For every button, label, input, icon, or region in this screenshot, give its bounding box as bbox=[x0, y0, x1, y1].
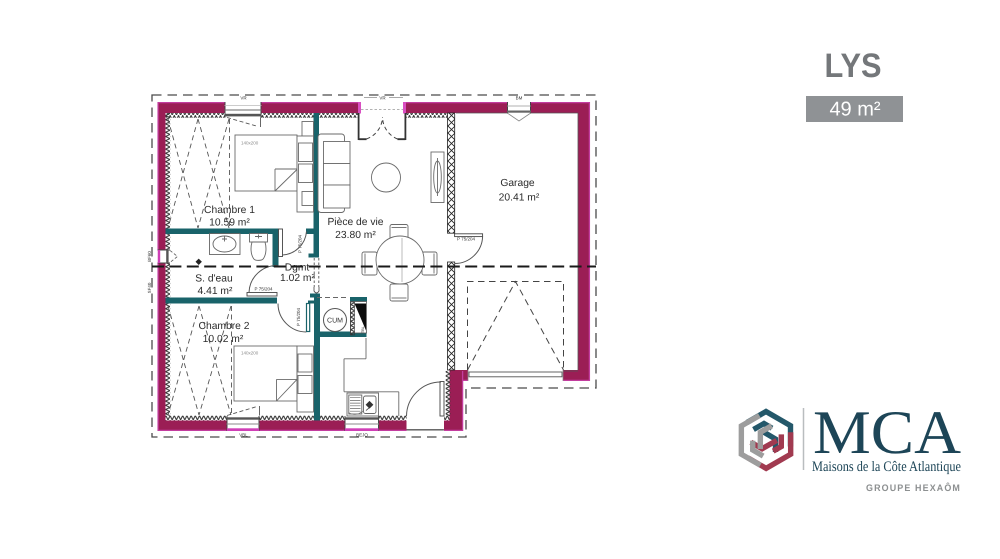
svg-text:MCA: MCA bbox=[813, 399, 961, 467]
svg-text:Pièce de vie: Pièce de vie bbox=[327, 217, 383, 228]
svg-text:TBL: TBL bbox=[361, 326, 365, 333]
svg-text:BM: BM bbox=[516, 96, 523, 101]
svg-text:Garage: Garage bbox=[500, 178, 535, 189]
svg-text:P 75/204: P 75/204 bbox=[255, 287, 273, 292]
svg-text:P 75/204: P 75/204 bbox=[457, 237, 475, 242]
svg-text:Maisons de la Côte Atlantique: Maisons de la Côte Atlantique bbox=[812, 459, 961, 475]
svg-text:GROUPE HEXAÔM: GROUPE HEXAÔM bbox=[866, 482, 961, 494]
svg-text:10.59 m²: 10.59 m² bbox=[209, 218, 250, 229]
svg-text:49 m²: 49 m² bbox=[829, 99, 880, 121]
svg-text:VBL: VBL bbox=[239, 433, 248, 438]
svg-text:20.41 m²: 20.41 m² bbox=[499, 193, 540, 204]
svg-text:Chambre 2: Chambre 2 bbox=[199, 321, 250, 332]
svg-text:Chambre 1: Chambre 1 bbox=[204, 205, 255, 216]
svg-text:140x200: 140x200 bbox=[241, 141, 259, 146]
svg-text:VR: VR bbox=[240, 96, 247, 101]
svg-text:BEJO: BEJO bbox=[356, 433, 368, 438]
svg-text:140x200: 140x200 bbox=[241, 351, 259, 356]
svg-text:SF40: SF40 bbox=[147, 282, 152, 293]
svg-text:VR: VR bbox=[379, 96, 386, 101]
svg-text:Dgmt: Dgmt bbox=[285, 263, 310, 274]
svg-text:1.02 m²: 1.02 m² bbox=[280, 273, 315, 284]
svg-text:4.41 m²: 4.41 m² bbox=[198, 286, 233, 297]
svg-text:CUM: CUM bbox=[327, 318, 343, 325]
svg-text:P 75/204: P 75/204 bbox=[298, 235, 303, 253]
svg-text:BF60: BF60 bbox=[147, 251, 152, 262]
svg-text:23.80 m²: 23.80 m² bbox=[335, 230, 376, 241]
svg-text:S. d'eau: S. d'eau bbox=[195, 274, 233, 285]
svg-text:P 75/204: P 75/204 bbox=[296, 308, 301, 326]
svg-text:LYS: LYS bbox=[825, 47, 882, 85]
svg-text:10.02 m²: 10.02 m² bbox=[203, 334, 244, 345]
